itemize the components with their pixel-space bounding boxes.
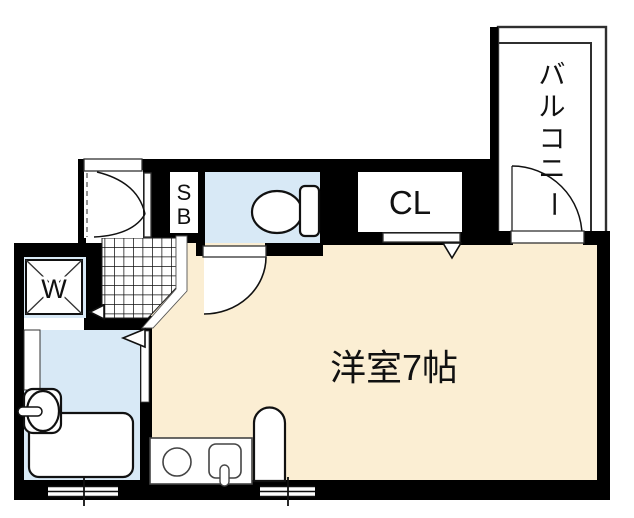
sink-faucet <box>220 465 229 486</box>
bathroom <box>18 329 149 480</box>
balcony-label-char: コ <box>539 124 566 154</box>
water-heater <box>254 407 285 481</box>
balcony-label-char: ル <box>539 92 566 122</box>
closet-label: CL <box>389 184 431 221</box>
entrance <box>84 159 151 238</box>
wall <box>320 159 362 245</box>
wall <box>597 231 610 488</box>
shoe-box-label-b: B <box>177 204 192 229</box>
balcony-label: バ ル コ ニ ー <box>538 60 568 218</box>
shoe-box-label-s: S <box>177 180 192 205</box>
wall <box>14 243 24 482</box>
wall <box>265 243 323 256</box>
toilet-bowl <box>252 191 302 233</box>
closet-folding-door <box>383 233 460 242</box>
shoe-box: S B <box>170 172 198 233</box>
washer-label: W <box>41 274 67 304</box>
toilet-door-leaf <box>203 246 266 257</box>
basin-faucet <box>18 407 42 416</box>
wall <box>490 27 498 234</box>
floorplan-svg: S B CL バ ル コ ニ ー W <box>0 0 634 518</box>
burner <box>163 448 191 476</box>
balcony-door-leaf <box>511 231 584 243</box>
western-room-label: 洋室7帖 <box>330 347 458 388</box>
balcony-label-char: バ <box>539 60 566 90</box>
toilet-tank <box>300 186 319 236</box>
balcony-label-char: ー <box>538 191 568 218</box>
bath-counter <box>24 330 40 390</box>
floorplan-page: S B CL バ ル コ ニ ー W <box>0 0 634 518</box>
entrance-floor <box>84 170 143 238</box>
front-door-leaf <box>84 159 142 171</box>
wall <box>205 159 330 172</box>
front-door-open-leaf <box>144 173 151 237</box>
balcony-label-char: ニ <box>539 154 566 184</box>
